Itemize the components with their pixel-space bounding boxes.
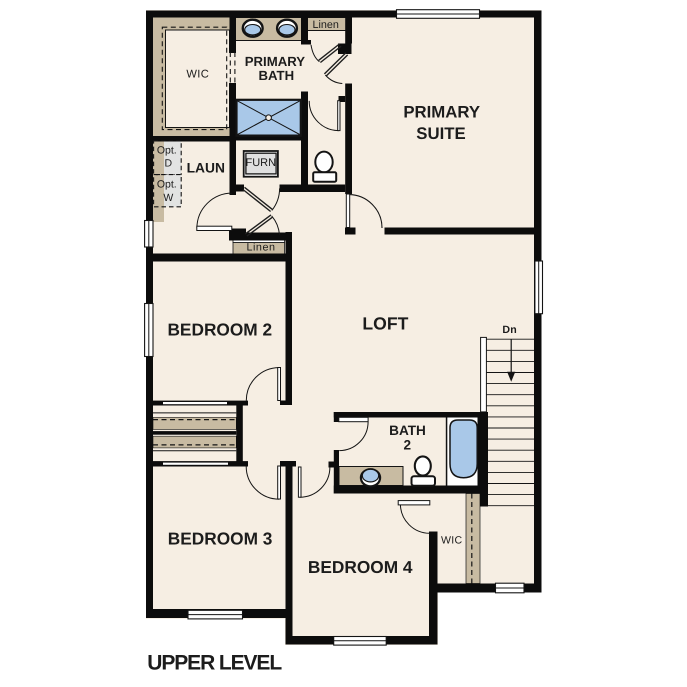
svg-text:Opt.: Opt.	[157, 179, 177, 191]
svg-text:Dn: Dn	[502, 324, 517, 336]
svg-text:Linen: Linen	[247, 242, 276, 254]
svg-text:BATH: BATH	[258, 68, 294, 83]
svg-text:WIC: WIC	[186, 69, 209, 81]
svg-text:2: 2	[404, 438, 412, 453]
svg-text:BEDROOM 2: BEDROOM 2	[167, 320, 272, 340]
svg-text:SUITE: SUITE	[416, 124, 465, 143]
svg-text:UPPER LEVEL: UPPER LEVEL	[147, 652, 282, 675]
svg-text:Linen: Linen	[312, 19, 338, 31]
svg-text:WIC: WIC	[441, 535, 463, 547]
svg-text:W: W	[163, 192, 173, 204]
svg-text:PRIMARY: PRIMARY	[245, 54, 306, 69]
svg-text:Opt.: Opt.	[157, 144, 177, 156]
svg-text:PRIMARY: PRIMARY	[403, 102, 480, 121]
svg-text:BEDROOM 4: BEDROOM 4	[308, 557, 413, 577]
svg-text:D: D	[165, 158, 173, 170]
svg-text:BEDROOM 3: BEDROOM 3	[168, 529, 273, 549]
svg-text:BATH: BATH	[389, 423, 426, 438]
svg-text:LAUN: LAUN	[187, 161, 225, 176]
svg-text:LOFT: LOFT	[362, 314, 408, 334]
svg-text:FURN: FURN	[246, 157, 277, 169]
